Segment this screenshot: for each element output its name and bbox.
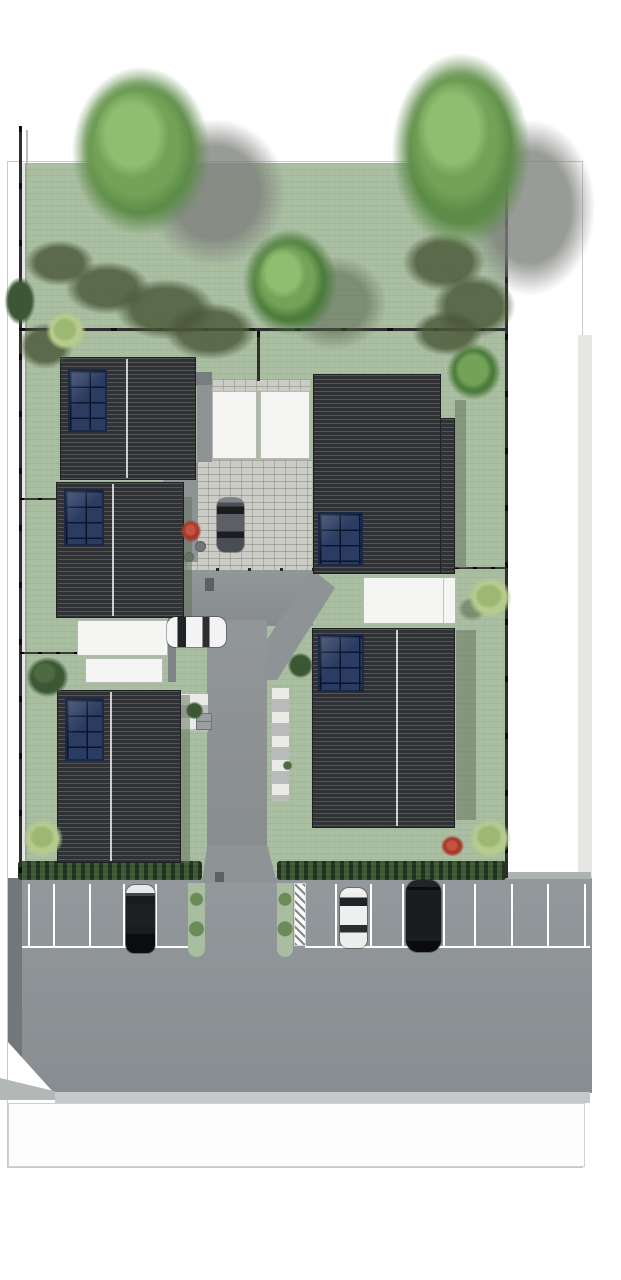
house-b-ridge bbox=[112, 484, 114, 616]
light-bush-southeast-core bbox=[471, 820, 507, 853]
house-c-ridge bbox=[110, 692, 112, 861]
site-plan-canvas bbox=[0, 0, 621, 1280]
light-bush-west-core bbox=[48, 313, 82, 346]
footpath-house-e bbox=[272, 688, 289, 802]
medium-tree-east-canopy bbox=[448, 344, 498, 396]
house-e-solar-array bbox=[318, 634, 364, 692]
dark-bush-driveway bbox=[284, 649, 317, 682]
parking-line bbox=[402, 884, 404, 946]
parking-green-strip bbox=[277, 883, 293, 957]
house-b-solar-array bbox=[64, 489, 104, 546]
red-flower-bush-courtyard-core bbox=[182, 521, 199, 539]
parking-line bbox=[123, 884, 125, 946]
sidewalk bbox=[8, 1103, 585, 1167]
fence-left-boundary bbox=[19, 126, 22, 878]
cobblestone-courtyard bbox=[186, 460, 312, 570]
courtyard-post-row bbox=[216, 568, 316, 571]
hedge-left bbox=[18, 861, 202, 880]
road-top-curb bbox=[503, 872, 591, 879]
parking-line bbox=[335, 884, 337, 946]
driveway-lane bbox=[207, 620, 267, 883]
parking-line bbox=[547, 884, 549, 946]
neighbor-path-strip bbox=[578, 335, 592, 878]
garage-right-divider bbox=[443, 578, 444, 623]
large-tree-northeast-highlight bbox=[404, 64, 502, 194]
dark-bush-west-edge bbox=[0, 270, 40, 332]
parking-line bbox=[53, 884, 55, 946]
parking-line bbox=[474, 884, 476, 946]
hatched-no-parking-strip bbox=[294, 883, 306, 946]
dark-bush-entrance bbox=[183, 699, 206, 722]
parking-line bbox=[28, 884, 30, 946]
cobble-band bbox=[212, 379, 310, 391]
small-bush-path bbox=[281, 759, 294, 772]
car-parking-left bbox=[126, 885, 155, 953]
house-d-shade bbox=[455, 400, 466, 568]
parking-line bbox=[155, 884, 157, 946]
fence-divider-left-1 bbox=[20, 498, 58, 500]
car-driveway bbox=[167, 617, 226, 647]
house-d-roof-extension bbox=[440, 418, 455, 574]
driveway-entry-flare bbox=[202, 845, 277, 883]
fence-shadow-tip bbox=[26, 130, 28, 163]
garage-left-1-roof bbox=[77, 620, 168, 656]
parking-line bbox=[443, 884, 445, 946]
house-a-ridge bbox=[126, 359, 128, 478]
parking-green-strip bbox=[188, 883, 205, 957]
parking-line bbox=[584, 884, 586, 946]
garage-center-1-roof bbox=[212, 391, 257, 459]
parking-line bbox=[511, 884, 513, 946]
large-tree-northwest-highlight bbox=[82, 76, 182, 194]
drain bbox=[215, 872, 224, 882]
curb-band bbox=[55, 1092, 590, 1103]
dark-bush-garden-left-core bbox=[28, 658, 61, 688]
house-a-solar-array bbox=[68, 369, 107, 432]
car-parking-suv bbox=[406, 880, 441, 952]
garage-left-2-roof bbox=[85, 658, 163, 683]
stall-end-line bbox=[22, 946, 188, 948]
house-d-solar-array bbox=[318, 512, 363, 566]
house-c-solar-array bbox=[65, 698, 104, 761]
asphalt-side-strip bbox=[197, 385, 212, 462]
garage-center-2-roof bbox=[260, 391, 310, 459]
medium-tree-center-highlight bbox=[252, 238, 314, 308]
house-e-ridge bbox=[396, 630, 398, 826]
drain bbox=[205, 578, 214, 591]
red-flower-bush-southeast-core bbox=[443, 837, 461, 854]
house-e-shade bbox=[456, 630, 476, 820]
light-bush-east-core bbox=[470, 579, 508, 613]
light-bush-southwest-core bbox=[25, 821, 59, 853]
house-b-shade bbox=[184, 497, 192, 617]
hedge-right bbox=[277, 861, 506, 880]
parking-line bbox=[89, 884, 91, 946]
car-parking-silver bbox=[340, 888, 367, 948]
car-courtyard bbox=[217, 498, 244, 552]
parking-line bbox=[370, 884, 372, 946]
